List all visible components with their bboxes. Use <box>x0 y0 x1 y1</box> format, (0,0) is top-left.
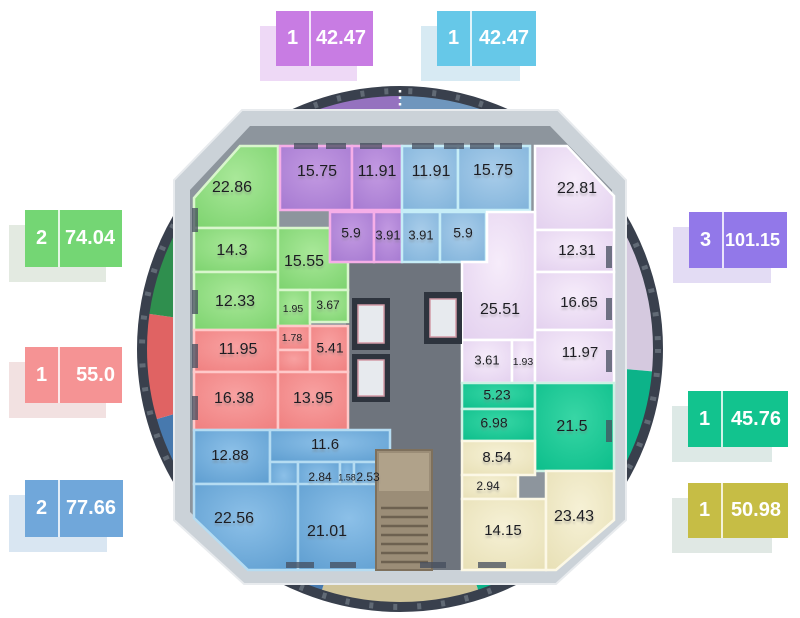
room-label-purple-2: 5.9 <box>341 225 361 241</box>
room-label-blue-1: 11.6 <box>311 436 339 453</box>
room-label-purple-0: 15.75 <box>297 163 337 180</box>
callout-body: 1 50.98 <box>688 483 788 538</box>
callout-right-olive[interactable]: 1 50.98 <box>688 483 788 538</box>
callout-right-teal[interactable]: 1 45.76 <box>688 391 788 447</box>
callout-rooms-count: 2 <box>25 227 58 250</box>
room-label-violet-1: 12.31 <box>558 242 596 259</box>
room-label-cyan-1: 15.75 <box>473 162 513 179</box>
callout-rooms-count: 3 <box>689 229 722 252</box>
room-label-red-0: 11.95 <box>219 341 258 358</box>
room-label-teal-0: 5.23 <box>483 387 510 403</box>
callout-area: 74.04 <box>60 227 122 250</box>
room-red-hall[interactable] <box>278 350 310 372</box>
room-label-green-0: 22.86 <box>212 179 252 196</box>
callout-body: 1 42.47 <box>437 11 536 66</box>
room-label-blue-0: 12.88 <box>211 447 249 464</box>
callout-left-green[interactable]: 2 74.04 <box>25 210 122 267</box>
room-label-red-1: 1.78 <box>282 332 303 344</box>
room-label-purple-3: 3.91 <box>375 227 400 242</box>
elevator-3-cab <box>430 299 456 337</box>
callout-area: 42.47 <box>311 27 373 50</box>
room-label-cyan-3: 5.9 <box>453 225 473 241</box>
callout-area: 45.76 <box>723 408 788 431</box>
callout-rooms-count: 1 <box>437 27 470 50</box>
callout-rooms-count: 1 <box>25 364 58 387</box>
stair-landing <box>379 453 429 491</box>
callout-area: 50.98 <box>723 499 788 522</box>
room-label-green-2: 12.33 <box>215 293 255 310</box>
elevator-2-cab <box>358 360 384 396</box>
callout-left-blue[interactable]: 2 77.66 <box>25 480 123 537</box>
room-label-violet-4: 3.61 <box>474 352 499 367</box>
room-label-olive-0: 8.54 <box>482 449 511 466</box>
callout-top-left-purple[interactable]: 1 42.47 <box>276 11 373 66</box>
callout-body: 2 74.04 <box>25 210 122 267</box>
callout-body: 2 77.66 <box>25 480 123 537</box>
room-label-olive-1: 2.94 <box>476 479 500 493</box>
room-label-green-3: 15.55 <box>284 253 324 270</box>
callout-body: 1 45.76 <box>688 391 788 447</box>
room-label-blue-2: 2.84 <box>308 470 332 484</box>
room-label-cyan-2: 3.91 <box>408 227 433 242</box>
callout-top-right-cyan[interactable]: 1 42.47 <box>437 11 536 66</box>
callout-area: 101.15 <box>724 230 787 251</box>
room-label-blue-6: 21.01 <box>307 523 347 540</box>
callout-body: 1 55.0 <box>25 347 122 403</box>
room-label-violet-3: 25.51 <box>480 301 520 318</box>
room-label-blue-4: 2.53 <box>356 470 380 484</box>
callout-rooms-count: 1 <box>276 27 309 50</box>
callout-right-violet[interactable]: 3 101.15 <box>689 212 787 268</box>
room-label-red-3: 16.38 <box>214 390 254 407</box>
room-label-blue-3: 1.58 <box>338 472 356 482</box>
callout-rooms-count: 1 <box>688 499 721 522</box>
room-label-blue-5: 22.56 <box>214 510 254 527</box>
room-label-teal-1: 6.98 <box>480 415 507 431</box>
floor-plan-stage: 22.86 14.3 12.33 15.55 1.95 3.67 15.75 1… <box>0 0 800 618</box>
callout-area: 55.0 <box>60 364 122 387</box>
room-label-violet-2: 16.65 <box>560 294 598 311</box>
callout-rooms-count: 2 <box>25 497 58 520</box>
room-label-green-5: 3.67 <box>316 298 340 312</box>
room-label-olive-3: 23.43 <box>554 508 594 525</box>
room-label-violet-0: 22.81 <box>557 180 597 197</box>
room-label-teal-2: 21.5 <box>556 418 587 435</box>
stair-steps <box>381 508 428 562</box>
room-label-green-1: 14.3 <box>216 242 247 259</box>
callout-rooms-count: 1 <box>688 408 721 431</box>
callout-body: 1 42.47 <box>276 11 373 66</box>
room-label-violet-5: 1.93 <box>513 356 534 368</box>
room-label-cyan-0: 11.91 <box>412 163 451 180</box>
callout-left-red[interactable]: 1 55.0 <box>25 347 122 403</box>
elevator-1-cab <box>358 305 384 343</box>
room-label-violet-6: 11.97 <box>562 344 598 361</box>
room-label-purple-1: 11.91 <box>358 163 397 180</box>
room-label-green-4: 1.95 <box>283 303 304 315</box>
callout-body: 3 101.15 <box>689 212 787 268</box>
room-label-red-4: 13.95 <box>293 390 333 407</box>
room-label-olive-2: 14.15 <box>484 522 522 539</box>
callout-area: 42.47 <box>472 27 536 50</box>
callout-area: 77.66 <box>60 497 123 520</box>
room-label-red-2: 5.41 <box>316 340 343 356</box>
